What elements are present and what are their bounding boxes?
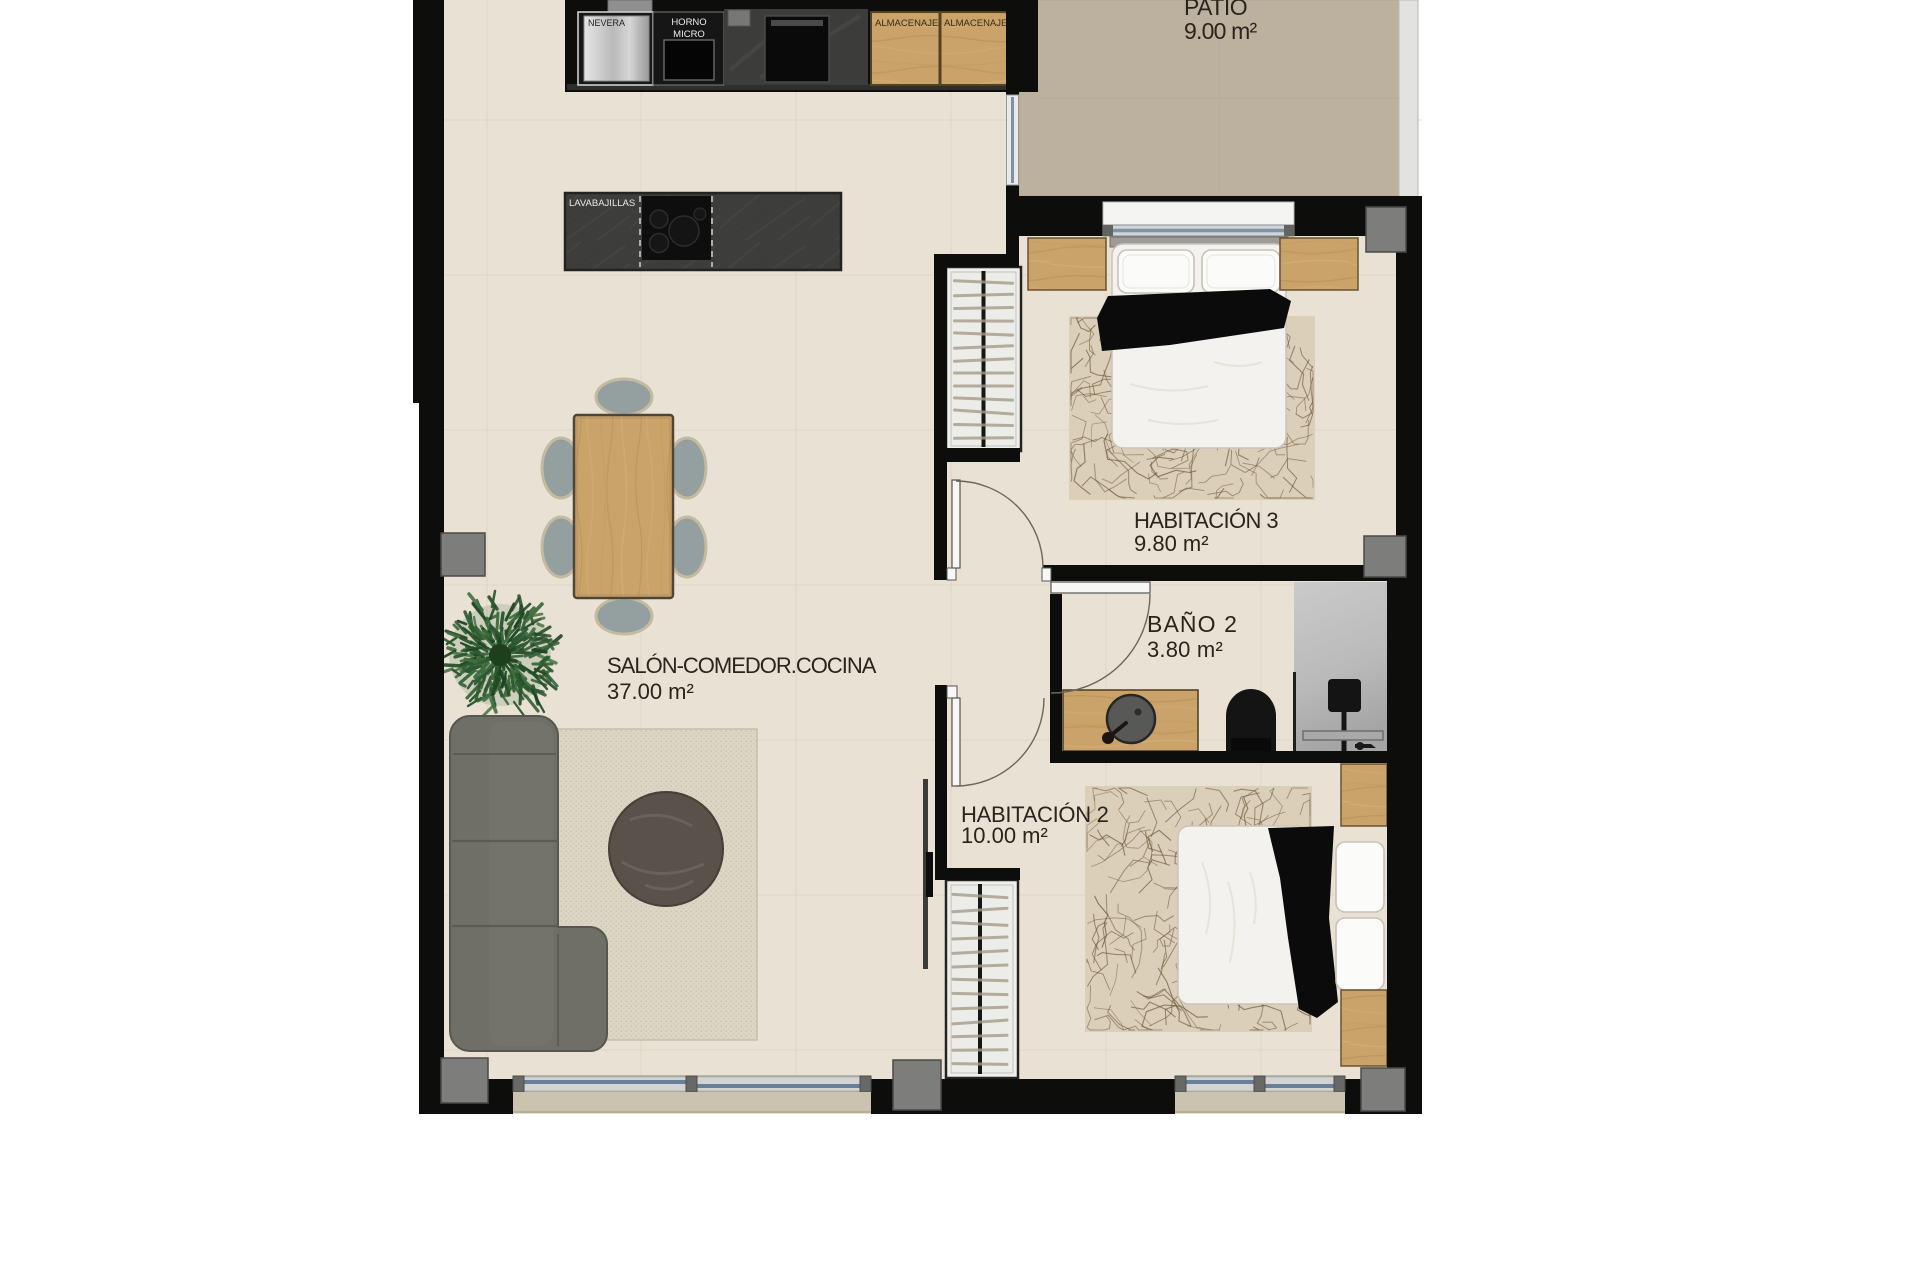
- svg-text:SALÓN-COMEDOR.COCINA: SALÓN-COMEDOR.COCINA: [607, 653, 877, 678]
- svg-text:BAÑO 2: BAÑO 2: [1147, 611, 1238, 637]
- svg-text:10.00 m²: 10.00 m²: [961, 823, 1048, 848]
- svg-text:HABITACIÓN 3: HABITACIÓN 3: [1134, 508, 1278, 533]
- svg-text:3.80 m²: 3.80 m²: [1147, 637, 1223, 662]
- svg-text:ALMACENAJE: ALMACENAJE: [875, 18, 938, 29]
- svg-text:LAVABAJILLAS: LAVABAJILLAS: [569, 198, 635, 209]
- svg-text:NEVERA: NEVERA: [588, 18, 625, 28]
- svg-text:9.00 m²: 9.00 m²: [1184, 18, 1258, 44]
- svg-text:PATIO: PATIO: [1184, 0, 1247, 20]
- svg-text:HORNO: HORNO: [671, 17, 706, 28]
- svg-text:37.00 m²: 37.00 m²: [607, 679, 694, 704]
- svg-text:9.80 m²: 9.80 m²: [1134, 531, 1209, 556]
- svg-text:ALMACENAJE: ALMACENAJE: [944, 18, 1007, 29]
- svg-text:MICRO: MICRO: [673, 29, 705, 40]
